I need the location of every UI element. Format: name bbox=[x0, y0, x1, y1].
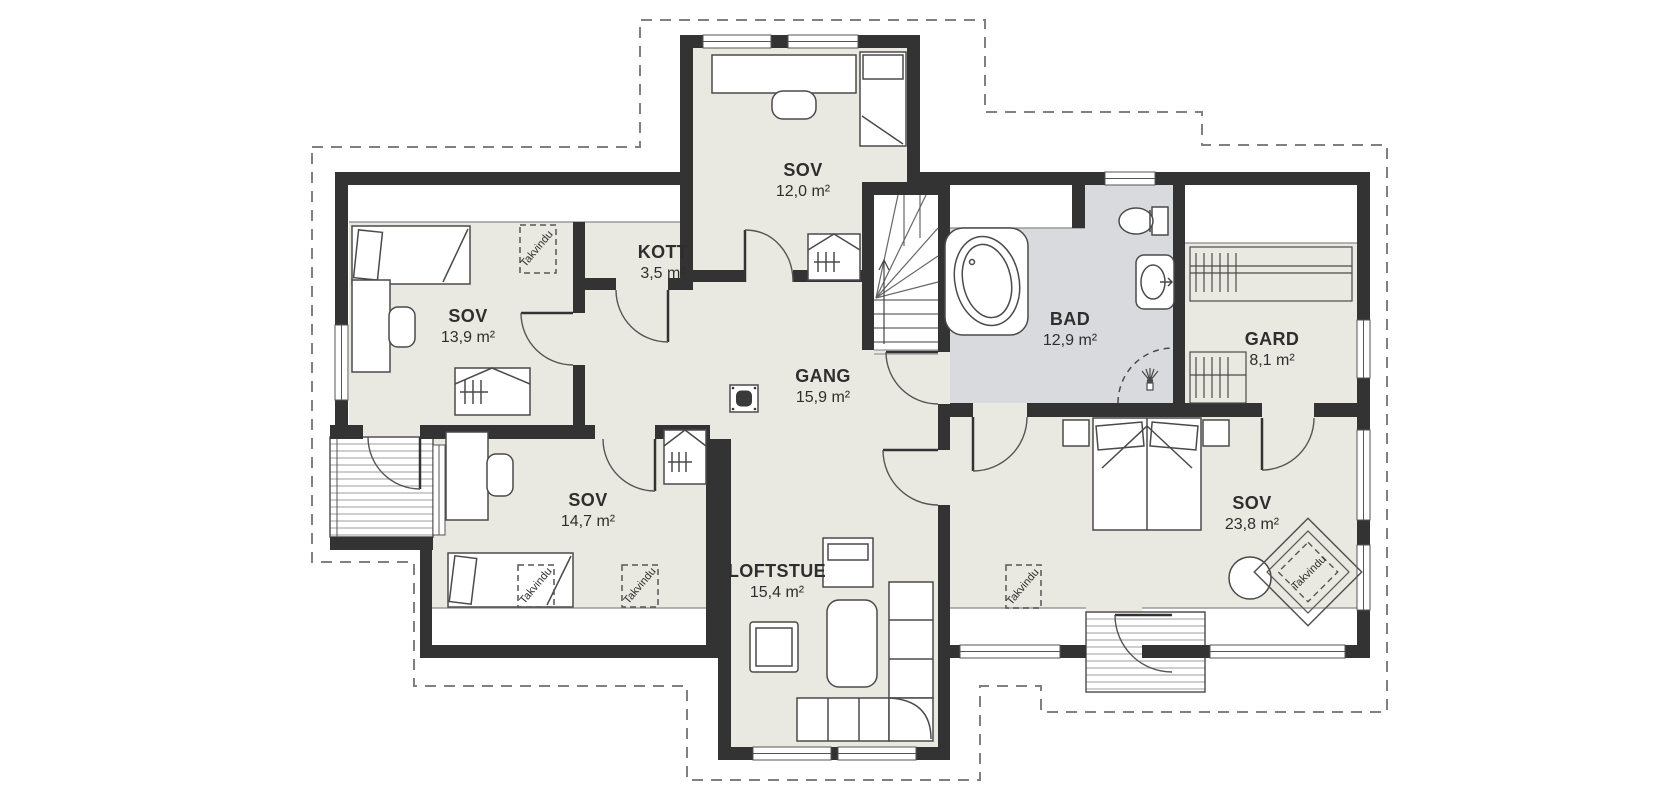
room-area: 3,5 m² bbox=[638, 263, 689, 283]
room-label-sov-bottom-left: SOV 14,7 m² bbox=[561, 489, 615, 532]
room-label-sov-left: SOV 13,9 m² bbox=[441, 305, 495, 348]
room-area: 13,9 m² bbox=[441, 327, 495, 347]
room-name: SOV bbox=[441, 305, 495, 328]
room-area: 12,9 m² bbox=[1043, 330, 1097, 350]
room-label-sov-right: SOV 23,8 m² bbox=[1225, 492, 1279, 535]
room-name: GANG bbox=[795, 365, 851, 388]
room-area: 15,9 m² bbox=[795, 387, 851, 407]
room-name: LOFTSTUE bbox=[728, 560, 826, 583]
room-area: 23,8 m² bbox=[1225, 514, 1279, 534]
room-label-gang: GANG 15,9 m² bbox=[795, 365, 851, 408]
room-name: KOTT bbox=[638, 241, 689, 264]
room-area: 8,1 m² bbox=[1245, 350, 1300, 370]
room-label-sov-top: SOV 12,0 m² bbox=[776, 159, 830, 202]
room-label-gard: GARD 8,1 m² bbox=[1245, 328, 1300, 371]
room-label-bad: BAD 12,9 m² bbox=[1043, 308, 1097, 351]
room-area: 14,7 m² bbox=[561, 511, 615, 531]
room-area: 12,0 m² bbox=[776, 181, 830, 201]
room-label-loftstue: LOFTSTUE 15,4 m² bbox=[728, 560, 826, 603]
room-name: BAD bbox=[1043, 308, 1097, 331]
balcony-left bbox=[330, 437, 433, 537]
room-name: SOV bbox=[1225, 492, 1279, 515]
room-name: GARD bbox=[1245, 328, 1300, 351]
room-area: 15,4 m² bbox=[728, 582, 826, 602]
room-name: SOV bbox=[561, 489, 615, 512]
room-label-kott: KOTT 3,5 m² bbox=[638, 241, 689, 284]
chimney bbox=[730, 385, 758, 412]
floor-plan: SOV 12,0 m² KOTT 3,5 m² SOV 13,9 m² GANG… bbox=[0, 0, 1670, 800]
room-name: SOV bbox=[776, 159, 830, 182]
